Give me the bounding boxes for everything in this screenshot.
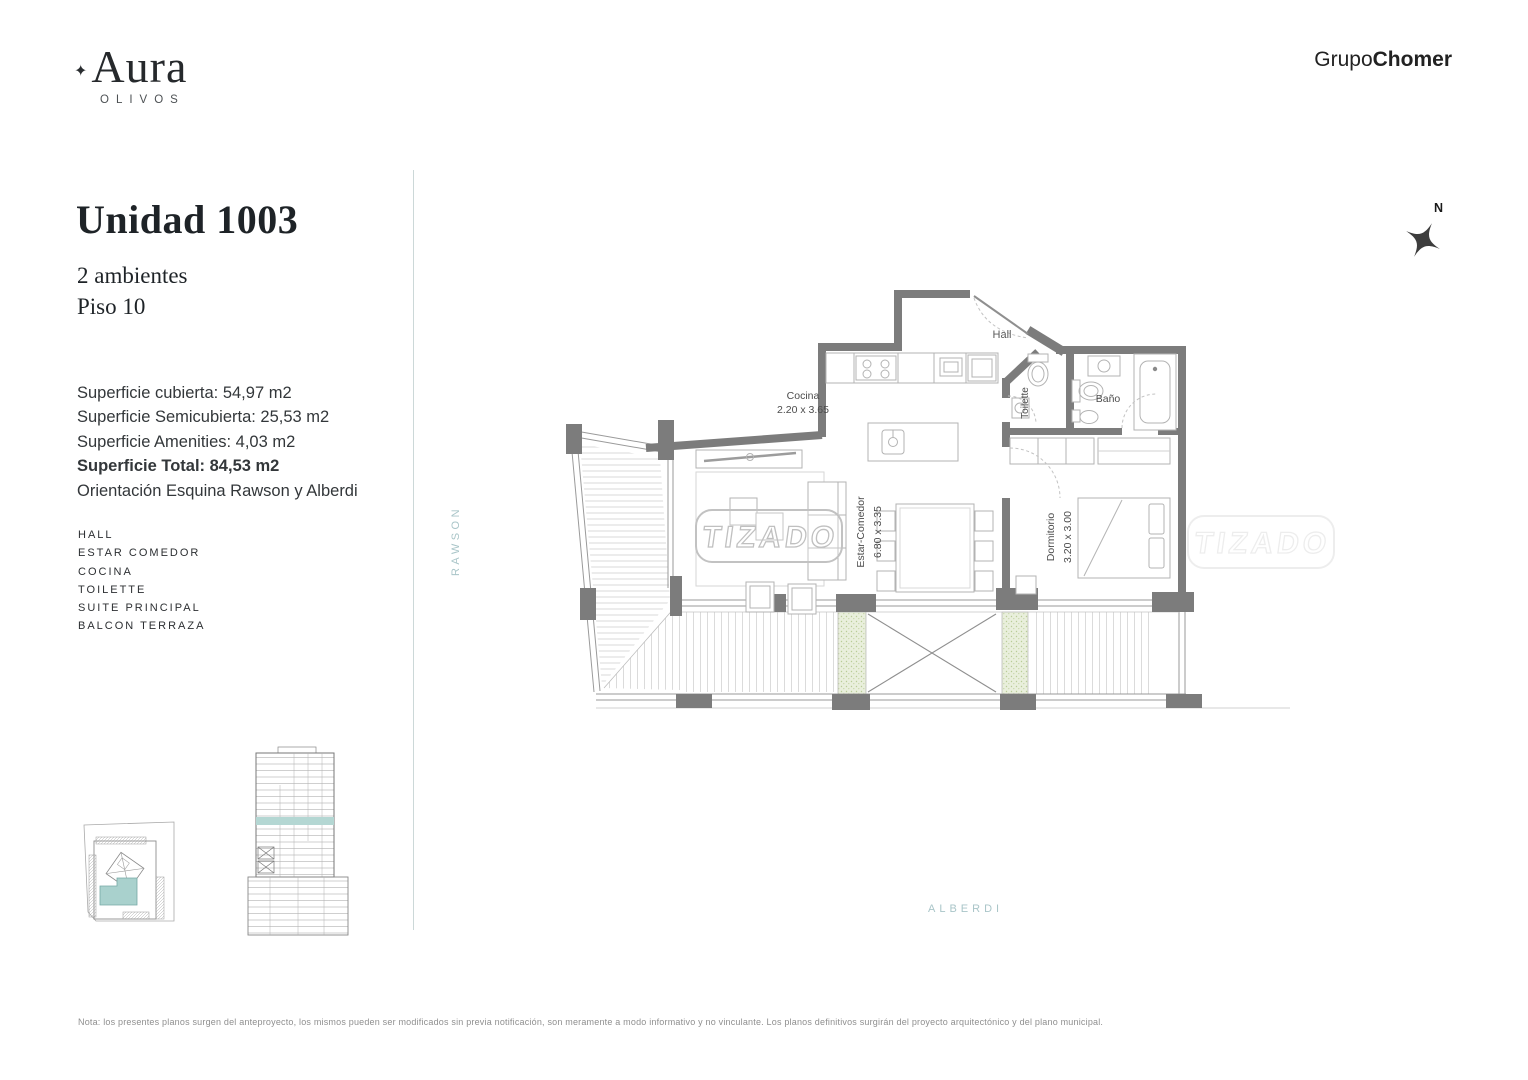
nightstand	[1016, 576, 1036, 594]
room-list: HALL ESTAR COMEDOR COCINA TOILETTE SUITE…	[78, 526, 205, 636]
bed	[1078, 498, 1170, 578]
compass-star-icon	[1398, 214, 1449, 265]
column	[676, 694, 712, 708]
unit-subtitle: 2 ambientes Piso 10	[77, 260, 188, 322]
brand-name: Aura	[91, 44, 187, 90]
compass: N	[1398, 196, 1458, 266]
label-toilette: Toilette	[1020, 387, 1031, 419]
surface-cubierta: Superficie cubierta: 54,97 m2	[77, 381, 358, 405]
balcony-decking	[580, 444, 1154, 694]
unit-title: Unidad 1003	[76, 196, 298, 243]
column	[566, 424, 582, 454]
lounge-chair	[746, 582, 774, 612]
stove	[856, 356, 896, 380]
svg-text:TIZADO: TIZADO	[700, 521, 840, 554]
dining-table	[877, 504, 993, 592]
tizado-watermark-faint: TIZADO	[1188, 516, 1334, 568]
surface-orientation: Orientación Esquina Rawson y Alberdi	[77, 479, 358, 503]
room-item: COCINA	[78, 563, 205, 581]
tizado-watermark: TIZADO	[696, 510, 842, 562]
label-hall: Hall	[993, 329, 1012, 341]
sink	[940, 358, 962, 376]
bathtub	[1134, 354, 1176, 430]
room-item: HALL	[78, 526, 205, 544]
column	[658, 420, 674, 460]
building-elevation	[246, 745, 350, 940]
column	[832, 694, 870, 710]
bidet	[1072, 410, 1098, 424]
column	[1166, 694, 1202, 708]
room-item: TOILETTE	[78, 581, 205, 599]
brand-logo: ✦ Aura OLIVOS	[74, 44, 187, 106]
label-cocina-dim: 2.20 x 3.65	[777, 404, 829, 416]
street-label-alberdi: ALBERDI	[928, 903, 1003, 915]
unit-floor: Piso 10	[77, 291, 188, 322]
pilaster	[1152, 592, 1194, 612]
green-pier	[1002, 612, 1028, 694]
tv-console	[696, 450, 802, 468]
compass-north-label: N	[1434, 201, 1443, 215]
surface-total: Superficie Total: 84,53 m2	[77, 454, 358, 478]
key-plan	[78, 813, 178, 948]
developer-suffix: Chomer	[1373, 48, 1452, 71]
svg-text:TIZADO: TIZADO	[1192, 527, 1332, 560]
vertical-divider	[413, 170, 414, 930]
room-item: ESTAR COMEDOR	[78, 544, 205, 562]
unit-highlight	[100, 878, 137, 905]
room-item: BALCON TERRAZA	[78, 617, 205, 635]
label-dormitorio-dim: 3.20 x 3.00	[1062, 511, 1074, 563]
door-swings	[974, 296, 1156, 498]
kitchen-counter	[826, 353, 998, 383]
developer-prefix: Grupo	[1314, 48, 1372, 71]
surface-list: Superficie cubierta: 54,97 m2 Superficie…	[77, 381, 358, 503]
toilet-toilette	[1028, 354, 1048, 386]
pilaster	[836, 594, 876, 612]
floor-highlight	[256, 817, 334, 825]
bathroom-vanity	[1088, 356, 1120, 376]
label-cocina: Cocina	[787, 390, 820, 402]
surface-amenities: Superficie Amenities: 4,03 m2	[77, 430, 358, 454]
surface-semicubierta: Superficie Semicubierta: 25,53 m2	[77, 405, 358, 429]
label-estar: Estar-Comedor	[855, 496, 867, 568]
diamond-icon: ✦	[74, 61, 87, 81]
developer-logo: GrupoChomer	[1314, 48, 1452, 72]
disclaimer-note: Nota: los presentes planos surgen del an…	[78, 1017, 1478, 1027]
column	[670, 576, 682, 616]
street-label-rawson: RAWSON	[450, 491, 462, 591]
brand-location: OLIVOS	[100, 94, 187, 106]
kitchen-island	[868, 423, 958, 461]
wardrobe	[1010, 438, 1170, 464]
label-bano: Baño	[1096, 393, 1121, 405]
brochure-page: ✦ Aura OLIVOS GrupoChomer Unidad 1003 2 …	[0, 0, 1528, 1080]
green-pier	[838, 612, 866, 694]
room-item: SUITE PRINCIPAL	[78, 599, 205, 617]
floor-plan: Hall Cocina 2.20 x 3.65 Baño Toilette Es…	[550, 270, 1410, 920]
column	[580, 588, 596, 620]
column	[1000, 694, 1036, 710]
lounge-chair	[788, 584, 816, 614]
label-estar-dim: 6.80 x 3.35	[872, 506, 884, 558]
label-dormitorio: Dormitorio	[1045, 513, 1057, 562]
unit-rooms-count: 2 ambientes	[77, 260, 188, 291]
